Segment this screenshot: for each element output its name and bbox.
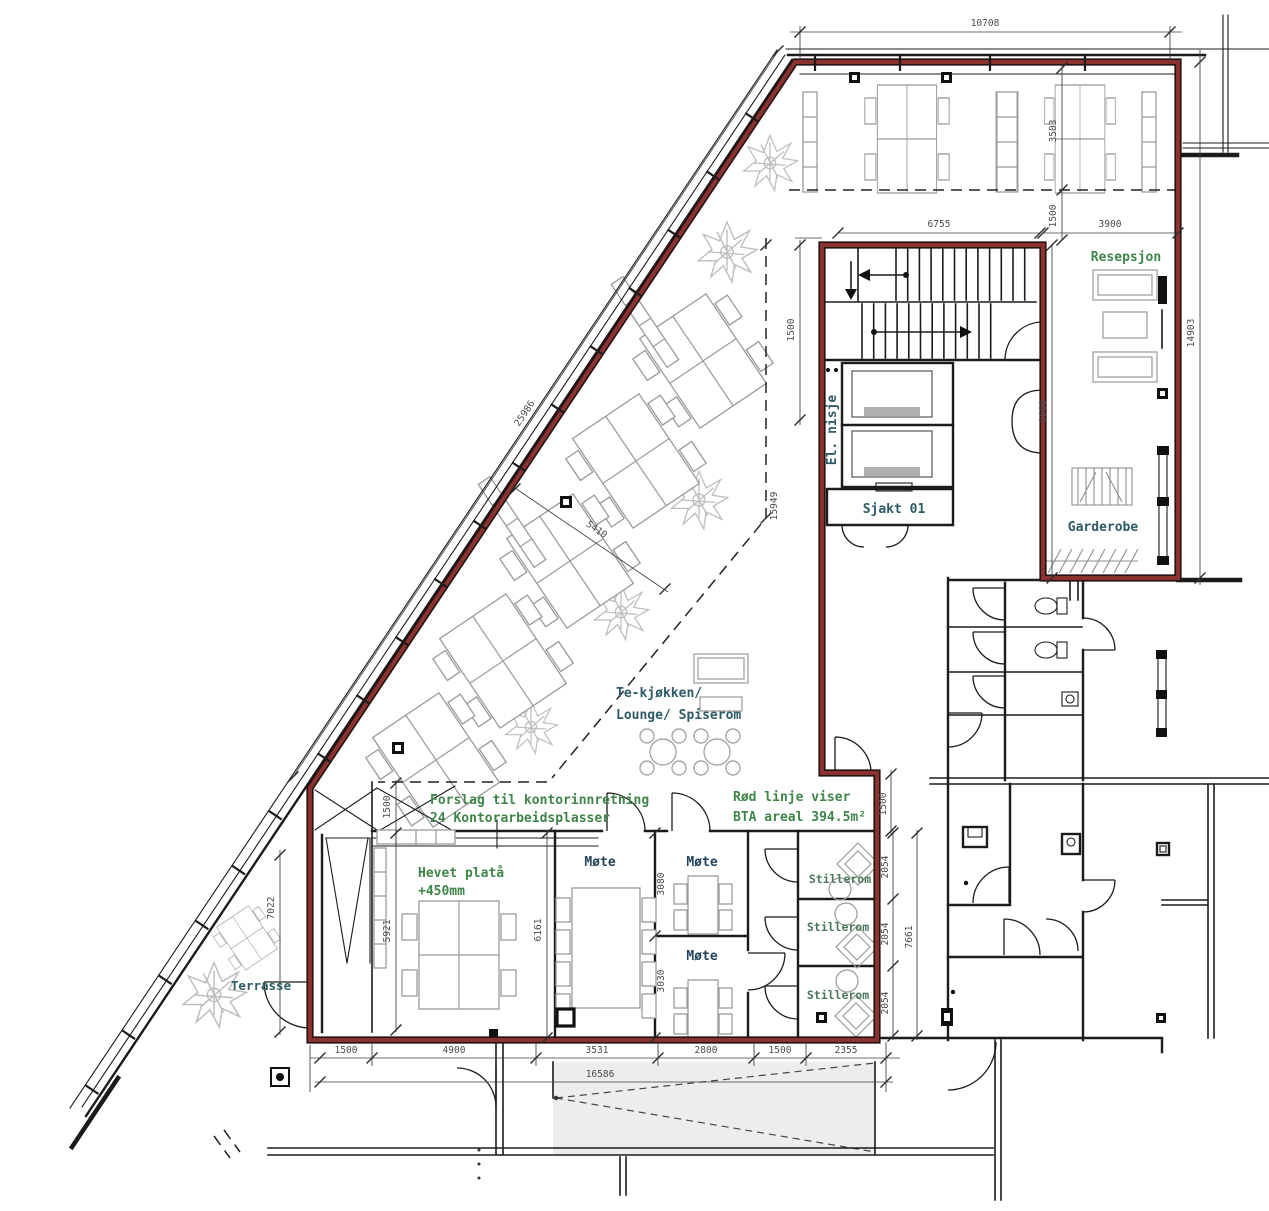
dim-5921: 5921 — [382, 919, 393, 942]
staircase — [822, 247, 1036, 358]
label-el-niche: El. nisje — [825, 395, 840, 466]
dim-16586: 16586 — [586, 1069, 615, 1080]
dim-2054-a: 2054 — [880, 855, 891, 878]
label-cloakroom: Garderobe — [1068, 520, 1139, 535]
dim-3080: 3080 — [656, 872, 667, 895]
dim-6755: 6755 — [928, 219, 951, 230]
label-platform-1: Hevet platå — [418, 866, 504, 881]
label-quiet-2: Stillerom — [807, 920, 869, 934]
label-meeting-1: Møte — [584, 855, 615, 870]
dim-1500-b: 1500 — [786, 318, 797, 341]
dim-1500-f: 1500 — [769, 1045, 792, 1056]
dim-1500-a: 1500 — [1048, 204, 1059, 227]
label-quiet-3: Stillerom — [807, 988, 869, 1002]
dim-14903: 14903 — [1186, 319, 1197, 348]
dim-2800: 2800 — [695, 1045, 718, 1056]
label-platform-2: +450mm — [418, 884, 465, 899]
sanitary-fixtures — [941, 598, 1169, 1026]
dim-2054-b: 2054 — [880, 922, 891, 945]
dim-1500-c: 1500 — [382, 795, 393, 818]
dim-6161: 6161 — [533, 918, 544, 941]
label-proposal-1: Forslag til kontorinnretning — [430, 793, 649, 808]
dim-3900: 3900 — [1099, 219, 1122, 230]
elevators — [826, 363, 953, 487]
column-markers — [271, 72, 952, 1180]
dim-2355: 2355 — [835, 1045, 858, 1056]
dim-4900: 4900 — [443, 1045, 466, 1056]
dim-7022: 7022 — [266, 897, 277, 920]
label-meeting-2: Møte — [686, 855, 717, 870]
label-proposal-2: 24 Kontorarbeidsplasser — [430, 811, 610, 826]
decor-line — [288, 772, 299, 783]
dim-9900: 9900 — [1038, 399, 1049, 422]
label-shaft: Sjakt 01 — [863, 502, 926, 517]
label-redline-2: BTA areal 394.5m² — [733, 810, 866, 825]
label-kitchen-2: Lounge/ Spiserom — [616, 708, 741, 723]
dim-3503: 3503 — [1048, 120, 1059, 143]
dim-3030: 3030 — [656, 969, 667, 992]
label-kitchen-1: Te-kjøkken/ — [616, 686, 702, 701]
label-reception: Resepsjon — [1091, 250, 1161, 265]
floor-plan-svg: 10708 3503 1500 6755 3900 1500 9900 1490… — [0, 0, 1269, 1211]
dim-7661: 7661 — [904, 925, 915, 948]
dim-10708: 10708 — [971, 18, 1000, 29]
dim-1500-d: 1500 — [878, 792, 889, 815]
label-meeting-3: Møte — [686, 949, 717, 964]
label-redline-1: Rød linje viser — [733, 790, 851, 805]
decor-line — [660, 584, 671, 595]
dim-3531: 3531 — [586, 1045, 609, 1056]
top-strip-furniture — [803, 85, 1156, 193]
floor-plan-page: 10708 3503 1500 6755 3900 1500 9900 1490… — [0, 0, 1269, 1211]
label-quiet-1: Stillerom — [809, 872, 871, 886]
dim-15949: 15949 — [769, 491, 780, 520]
label-terrace: Terrasse — [231, 978, 292, 993]
dim-2054-c: 2054 — [880, 991, 891, 1014]
dim-1500-e: 1500 — [335, 1045, 358, 1056]
decor-line — [773, 46, 784, 57]
